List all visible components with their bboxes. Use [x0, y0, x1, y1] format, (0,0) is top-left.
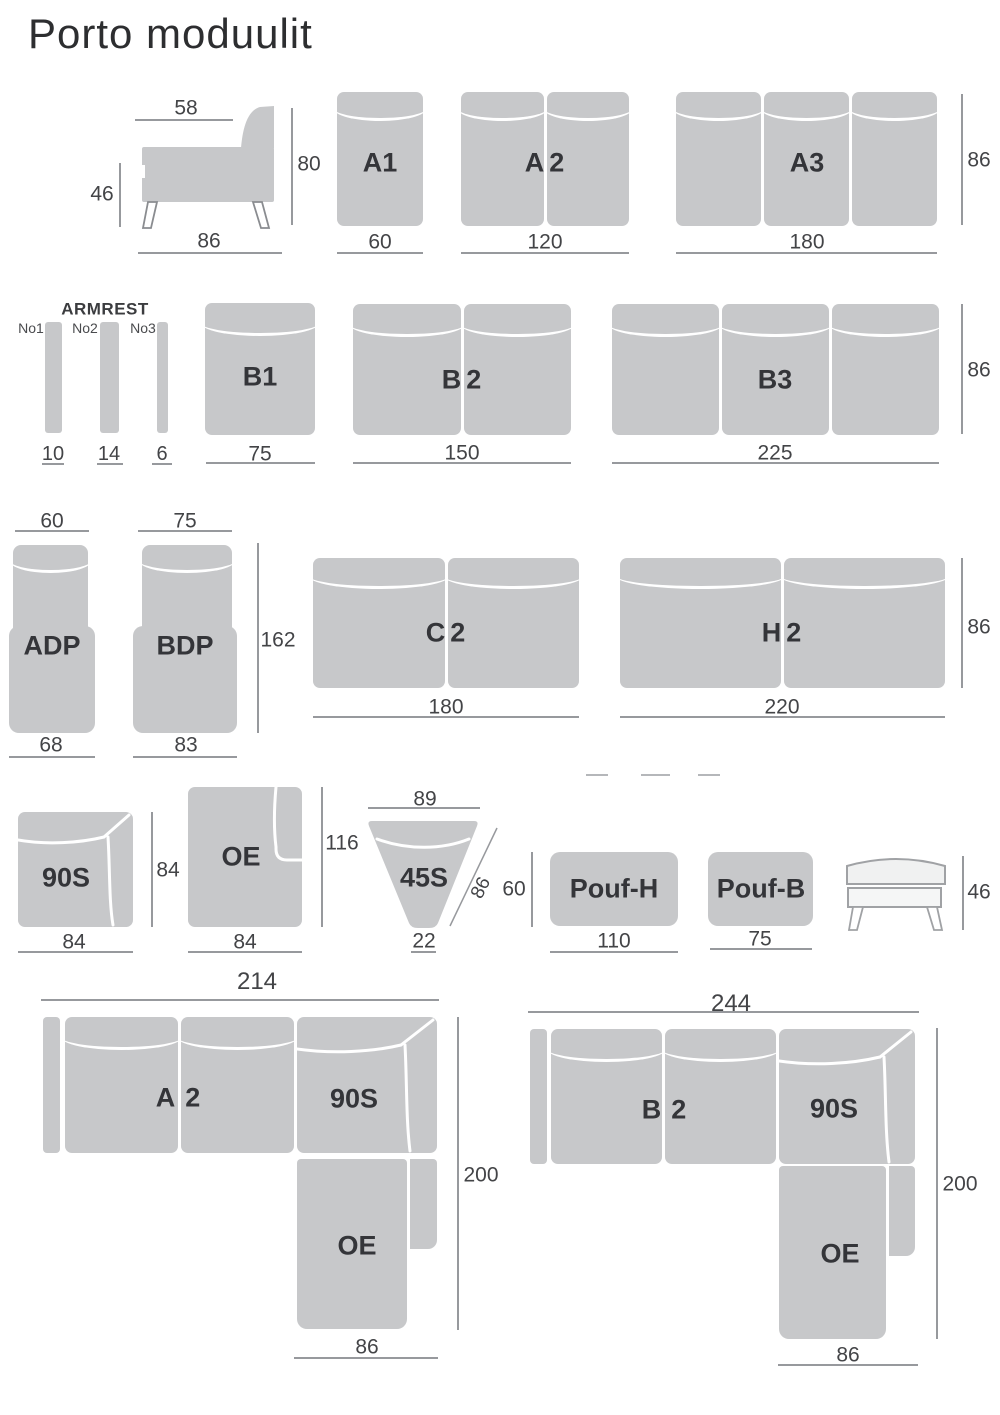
config2-oe-label: OE — [820, 1241, 859, 1268]
module-b1-label: B1 — [243, 364, 278, 391]
dash-mark — [641, 774, 670, 776]
seat-seam — [13, 557, 88, 573]
dim-line — [188, 951, 302, 953]
config2-b2-label: B2 — [642, 1097, 697, 1124]
dim-line — [138, 530, 232, 532]
armrest-no2-label: No2 — [72, 321, 98, 335]
dim-line — [620, 716, 945, 718]
dim-config2-oe-width: 86 — [836, 1345, 859, 1366]
module-section — [612, 304, 719, 435]
dim-poufb-width: 75 — [748, 929, 771, 950]
module-a1-label: A1 — [363, 150, 398, 177]
dim-line — [135, 119, 233, 121]
dim-line — [710, 948, 812, 950]
module-b3-label: B3 — [758, 367, 793, 394]
dim-line — [961, 558, 963, 688]
dim-line — [257, 543, 259, 733]
dim-line — [411, 951, 436, 953]
dim-bdp-top: 75 — [173, 511, 196, 532]
module-bdp-label: BDP — [156, 633, 213, 660]
module-section — [784, 558, 945, 688]
config1-oe-label: OE — [337, 1233, 376, 1260]
dim-a1-width: 60 — [368, 232, 391, 253]
dim-45s-bottom: 22 — [412, 931, 435, 952]
dash-mark — [586, 774, 608, 776]
module-c2-label: C2 — [426, 620, 471, 647]
dim-line — [528, 1011, 919, 1013]
seat-seam — [65, 1034, 178, 1050]
dim-line — [353, 462, 571, 464]
dim-line — [206, 462, 315, 464]
module-section — [620, 558, 781, 688]
module-90s-label: 90S — [42, 865, 90, 892]
dim-chaise-depth: 162 — [260, 630, 295, 651]
dim-bdp-bottom: 83 — [174, 735, 197, 756]
module-a3-label: A3 — [790, 150, 825, 177]
seat-seam — [461, 105, 544, 121]
armrest-no1-bar — [45, 322, 62, 433]
seat-seam — [181, 1034, 294, 1050]
dim-line — [9, 756, 95, 758]
config1-90s-label: 90S — [330, 1086, 378, 1113]
dim-row3-height: 86 — [967, 617, 990, 638]
dim-line — [15, 530, 89, 532]
dim-line — [612, 462, 939, 464]
dim-90s-height: 84 — [156, 860, 179, 881]
armrest-no1-label: No1 — [18, 321, 44, 335]
dash-mark — [698, 774, 720, 776]
dim-row1-height: 86 — [967, 150, 990, 171]
dim-sofa-top: 58 — [174, 98, 197, 119]
dim-bench-height: 46 — [967, 882, 990, 903]
dim-config1-total: 214 — [237, 970, 277, 994]
armrest-no2-bar — [100, 322, 119, 433]
dim-oe-width: 84 — [233, 932, 256, 953]
dim-line — [337, 252, 423, 254]
dim-adp-top: 60 — [40, 511, 63, 532]
dim-line — [321, 787, 323, 927]
dim-line — [152, 463, 172, 465]
dim-line — [119, 163, 121, 227]
seat-seam — [832, 321, 939, 337]
armrest-no3-bar — [157, 322, 168, 433]
dim-line — [41, 999, 439, 1001]
dim-b2-width: 150 — [444, 443, 479, 464]
dim-sofa-depth: 86 — [197, 231, 220, 252]
dim-armrest-no2: 14 — [98, 444, 120, 464]
dim-a2-width: 120 — [527, 232, 562, 253]
dim-config1-depth: 200 — [463, 1165, 498, 1186]
dim-line — [531, 852, 533, 927]
dim-row2-height: 86 — [967, 360, 990, 381]
seat-seam — [353, 321, 461, 337]
dim-line — [457, 1017, 459, 1330]
seat-seam — [464, 321, 572, 337]
dim-c2-width: 180 — [428, 697, 463, 718]
config2-90s-label: 90S — [810, 1096, 858, 1123]
dim-line — [18, 951, 133, 953]
dim-line — [461, 252, 629, 254]
dim-line — [936, 1028, 938, 1339]
config1-a2-label: A2 — [156, 1085, 211, 1112]
module-oe-label: OE — [221, 844, 260, 871]
seat-seam — [551, 1046, 662, 1062]
dim-h2-width: 220 — [764, 697, 799, 718]
seat-seam — [337, 105, 423, 121]
module-b2-label: B2 — [442, 367, 487, 394]
dim-line — [42, 463, 64, 465]
dim-armrest-no1: 10 — [42, 444, 64, 464]
module-45s-label: 45S — [400, 865, 448, 892]
module-a2-label: A2 — [525, 150, 570, 177]
seat-seam — [612, 321, 719, 337]
module-section — [832, 304, 939, 435]
config1-armrest — [43, 1017, 60, 1153]
module-adp-label: ADP — [23, 633, 80, 660]
dim-line — [961, 94, 963, 225]
dim-armrest-no3: 6 — [156, 444, 167, 464]
pouf-side-view-drawing — [843, 851, 949, 933]
dim-line — [778, 1364, 918, 1366]
module-pouf-b-label: Pouf-B — [717, 876, 805, 903]
config2-armrest — [530, 1029, 547, 1164]
seat-seam — [313, 573, 445, 589]
module-h2-label: H2 — [762, 620, 807, 647]
dim-b3-width: 225 — [757, 443, 792, 464]
seat-seam — [547, 105, 630, 121]
dim-line — [291, 108, 293, 225]
module-pouf-h-label: Pouf-H — [570, 876, 658, 903]
armrest-no3-label: No3 — [130, 321, 156, 335]
dim-line — [368, 807, 480, 809]
config1-oe-backstrip — [410, 1159, 437, 1249]
module-section — [676, 92, 761, 226]
dim-sofa-height: 80 — [297, 154, 320, 175]
armrest-title: ARMREST — [61, 301, 149, 318]
dim-90s-width: 84 — [62, 932, 85, 953]
config2-oe-backstrip — [889, 1166, 915, 1256]
dim-adp-bottom: 68 — [39, 735, 62, 756]
page-title: Porto moduulit — [28, 10, 313, 58]
dim-config2-depth: 200 — [942, 1174, 977, 1195]
seat-seam — [764, 105, 849, 121]
dim-line — [133, 756, 237, 758]
seat-seam — [676, 105, 761, 121]
seat-seam — [205, 320, 315, 336]
dim-line — [676, 252, 937, 254]
dim-line — [962, 856, 964, 930]
dim-line — [961, 304, 963, 434]
dim-sofa-seat-height: 46 — [90, 184, 113, 205]
module-adp-back — [13, 545, 88, 628]
dim-config1-oe-width: 86 — [355, 1337, 378, 1358]
dim-a3-width: 180 — [789, 232, 824, 253]
seat-seam — [722, 321, 829, 337]
seat-seam — [852, 105, 937, 121]
seat-seam — [142, 557, 232, 573]
dim-line — [151, 812, 153, 927]
dim-poufh-height: 60 — [502, 879, 525, 900]
diagram-canvas: Porto moduulit 58 80 46 86 A1 60 A2 120 … — [0, 0, 1000, 1415]
module-bdp-back — [142, 545, 232, 628]
seat-seam — [665, 1046, 776, 1062]
dim-line — [97, 463, 123, 465]
dim-oe-height: 116 — [325, 833, 358, 854]
seat-seam — [784, 573, 945, 589]
module-section — [852, 92, 937, 226]
dim-line — [294, 1357, 438, 1359]
dim-poufh-width: 110 — [597, 931, 630, 952]
dim-line — [550, 951, 678, 953]
dim-line — [313, 716, 579, 718]
seat-seam — [448, 573, 580, 589]
seat-seam — [620, 573, 781, 589]
